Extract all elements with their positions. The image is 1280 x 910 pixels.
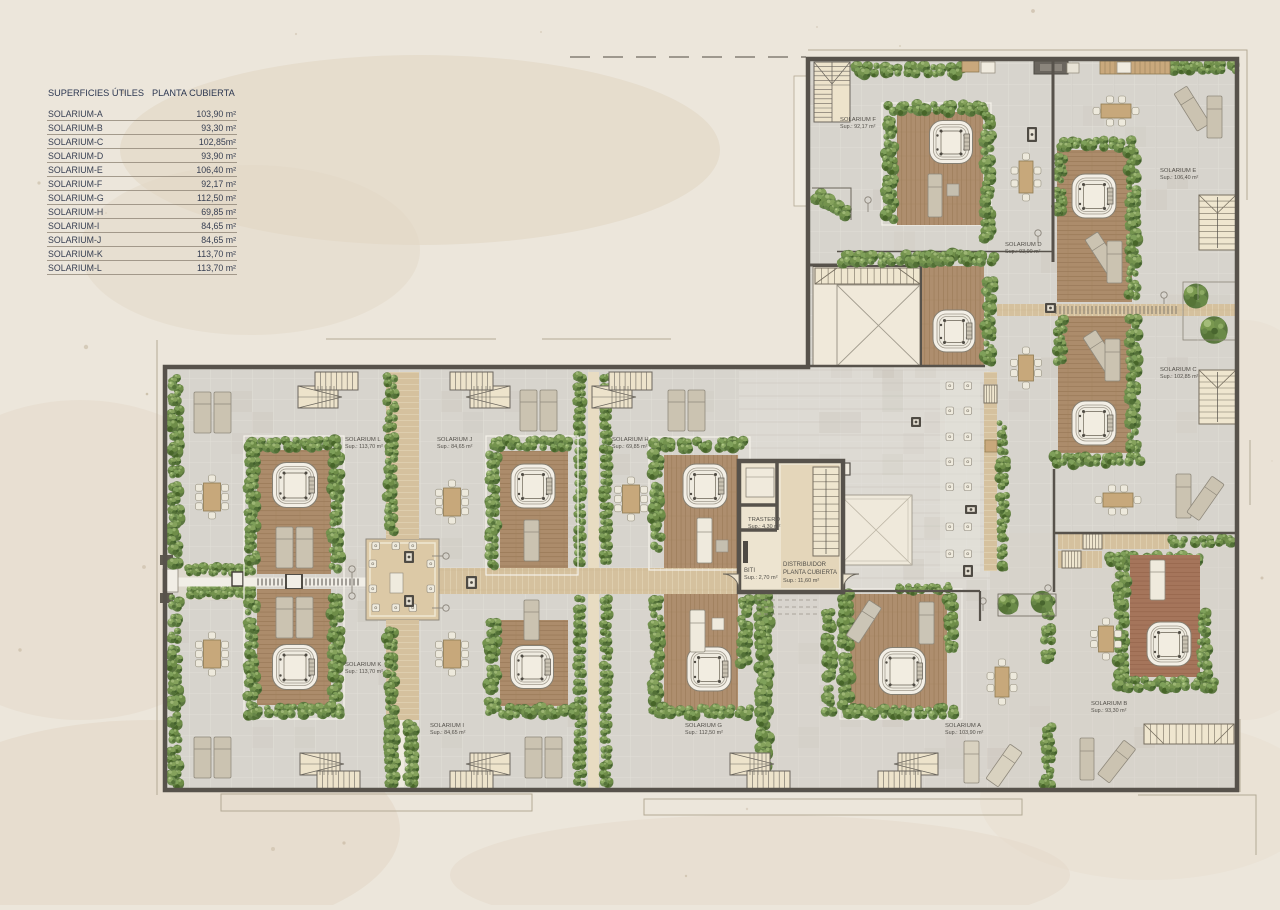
svg-text:SOLARIUM E: SOLARIUM E	[1160, 168, 1196, 174]
svg-text:Sup.: 2,70 m²: Sup.: 2,70 m²	[744, 575, 778, 581]
svg-text:SOLARIUM A: SOLARIUM A	[945, 723, 981, 729]
svg-text:SOLARIUM-L: SOLARIUM-L	[48, 263, 102, 273]
svg-text:SOLARIUM-J: SOLARIUM-J	[48, 235, 101, 245]
svg-text:SOLARIUM-H: SOLARIUM-H	[48, 207, 103, 217]
svg-text:Sup.: 84,65 m²: Sup.: 84,65 m²	[437, 444, 473, 450]
svg-text:SOLARIUM-A: SOLARIUM-A	[48, 109, 103, 119]
svg-text:112,50 m²: 112,50 m²	[197, 193, 236, 203]
svg-text:Sup.: 69,85 m²: Sup.: 69,85 m²	[612, 444, 648, 450]
svg-text:SOLARIUM F: SOLARIUM F	[840, 117, 876, 123]
svg-text:Sup.: 106,40 m²: Sup.: 106,40 m²	[1160, 175, 1199, 181]
svg-text:SOLARIUM-I: SOLARIUM-I	[48, 221, 99, 231]
svg-text:SOLARIUM-K: SOLARIUM-K	[48, 249, 103, 259]
svg-text:Sup.: 113,70 m²: Sup.: 113,70 m²	[345, 444, 383, 450]
svg-text:SOLARIUM-F: SOLARIUM-F	[48, 179, 103, 189]
svg-text:SOLARIUM D: SOLARIUM D	[1005, 242, 1042, 248]
svg-text:SOLARIUM K: SOLARIUM K	[345, 662, 381, 668]
svg-text:93,30 m²: 93,30 m²	[201, 123, 236, 133]
svg-text:Sup.: 113,70 m²: Sup.: 113,70 m²	[345, 669, 383, 675]
svg-text:PLANTA CUBIERTA: PLANTA CUBIERTA	[152, 88, 236, 98]
svg-text:SOLARIUM-E: SOLARIUM-E	[48, 165, 103, 175]
svg-text:PLANTA CUBIERTA: PLANTA CUBIERTA	[783, 570, 837, 576]
svg-text:69,85 m²: 69,85 m²	[201, 207, 236, 217]
svg-text:BITI: BITI	[744, 568, 755, 574]
svg-text:Sup.: 92,17 m²: Sup.: 92,17 m²	[840, 124, 876, 130]
svg-text:106,40 m²: 106,40 m²	[196, 165, 236, 175]
svg-text:SOLARIUM H: SOLARIUM H	[612, 437, 649, 443]
svg-text:SOLARIUM L: SOLARIUM L	[345, 437, 381, 443]
svg-text:SOLARIUM-C: SOLARIUM-C	[48, 137, 104, 147]
svg-text:92,17 m²: 92,17 m²	[201, 179, 236, 189]
svg-text:SOLARIUM-B: SOLARIUM-B	[48, 123, 103, 133]
svg-text:SOLARIUM J: SOLARIUM J	[437, 437, 472, 443]
svg-text:SOLARIUM I: SOLARIUM I	[430, 723, 464, 729]
svg-text:Sup.: 84,65 m²: Sup.: 84,65 m²	[430, 730, 466, 736]
svg-text:Sup.: 112,50 m²: Sup.: 112,50 m²	[685, 730, 723, 736]
svg-text:Sup.: 103,90 m²: Sup.: 103,90 m²	[945, 730, 984, 736]
svg-text:TRASTERO: TRASTERO	[748, 517, 780, 523]
svg-text:103,90 m²: 103,90 m²	[196, 109, 236, 119]
svg-text:SOLARIUM-G: SOLARIUM-G	[48, 193, 104, 203]
svg-text:93,90 m²: 93,90 m²	[201, 151, 236, 161]
svg-text:Sup.: 93,90 m²: Sup.: 93,90 m²	[1005, 249, 1041, 255]
svg-text:SUPERFICIES ÚTILES: SUPERFICIES ÚTILES	[48, 88, 144, 98]
svg-text:SOLARIUM B: SOLARIUM B	[1091, 701, 1127, 707]
svg-text:Sup.: 4,30 m²: Sup.: 4,30 m²	[748, 524, 781, 530]
svg-text:SOLARIUM-D: SOLARIUM-D	[48, 151, 103, 161]
svg-text:Sup.: 11,60 m²: Sup.: 11,60 m²	[783, 578, 819, 584]
svg-text:Sup.: 93,30 m²: Sup.: 93,30 m²	[1091, 708, 1127, 714]
svg-text:Sup.: 102,85 m²: Sup.: 102,85 m²	[1160, 374, 1199, 380]
svg-text:DISTRIBUIDOR: DISTRIBUIDOR	[783, 562, 827, 568]
svg-text:102,85m²: 102,85m²	[199, 137, 236, 147]
svg-text:113,70 m²: 113,70 m²	[197, 249, 236, 259]
svg-text:84,65 m²: 84,65 m²	[201, 221, 236, 231]
svg-text:113,70 m²: 113,70 m²	[197, 263, 236, 273]
svg-text:SOLARIUM G: SOLARIUM G	[685, 723, 722, 729]
svg-text:SOLARIUM C: SOLARIUM C	[1160, 367, 1197, 373]
svg-text:84,65 m²: 84,65 m²	[201, 235, 236, 245]
